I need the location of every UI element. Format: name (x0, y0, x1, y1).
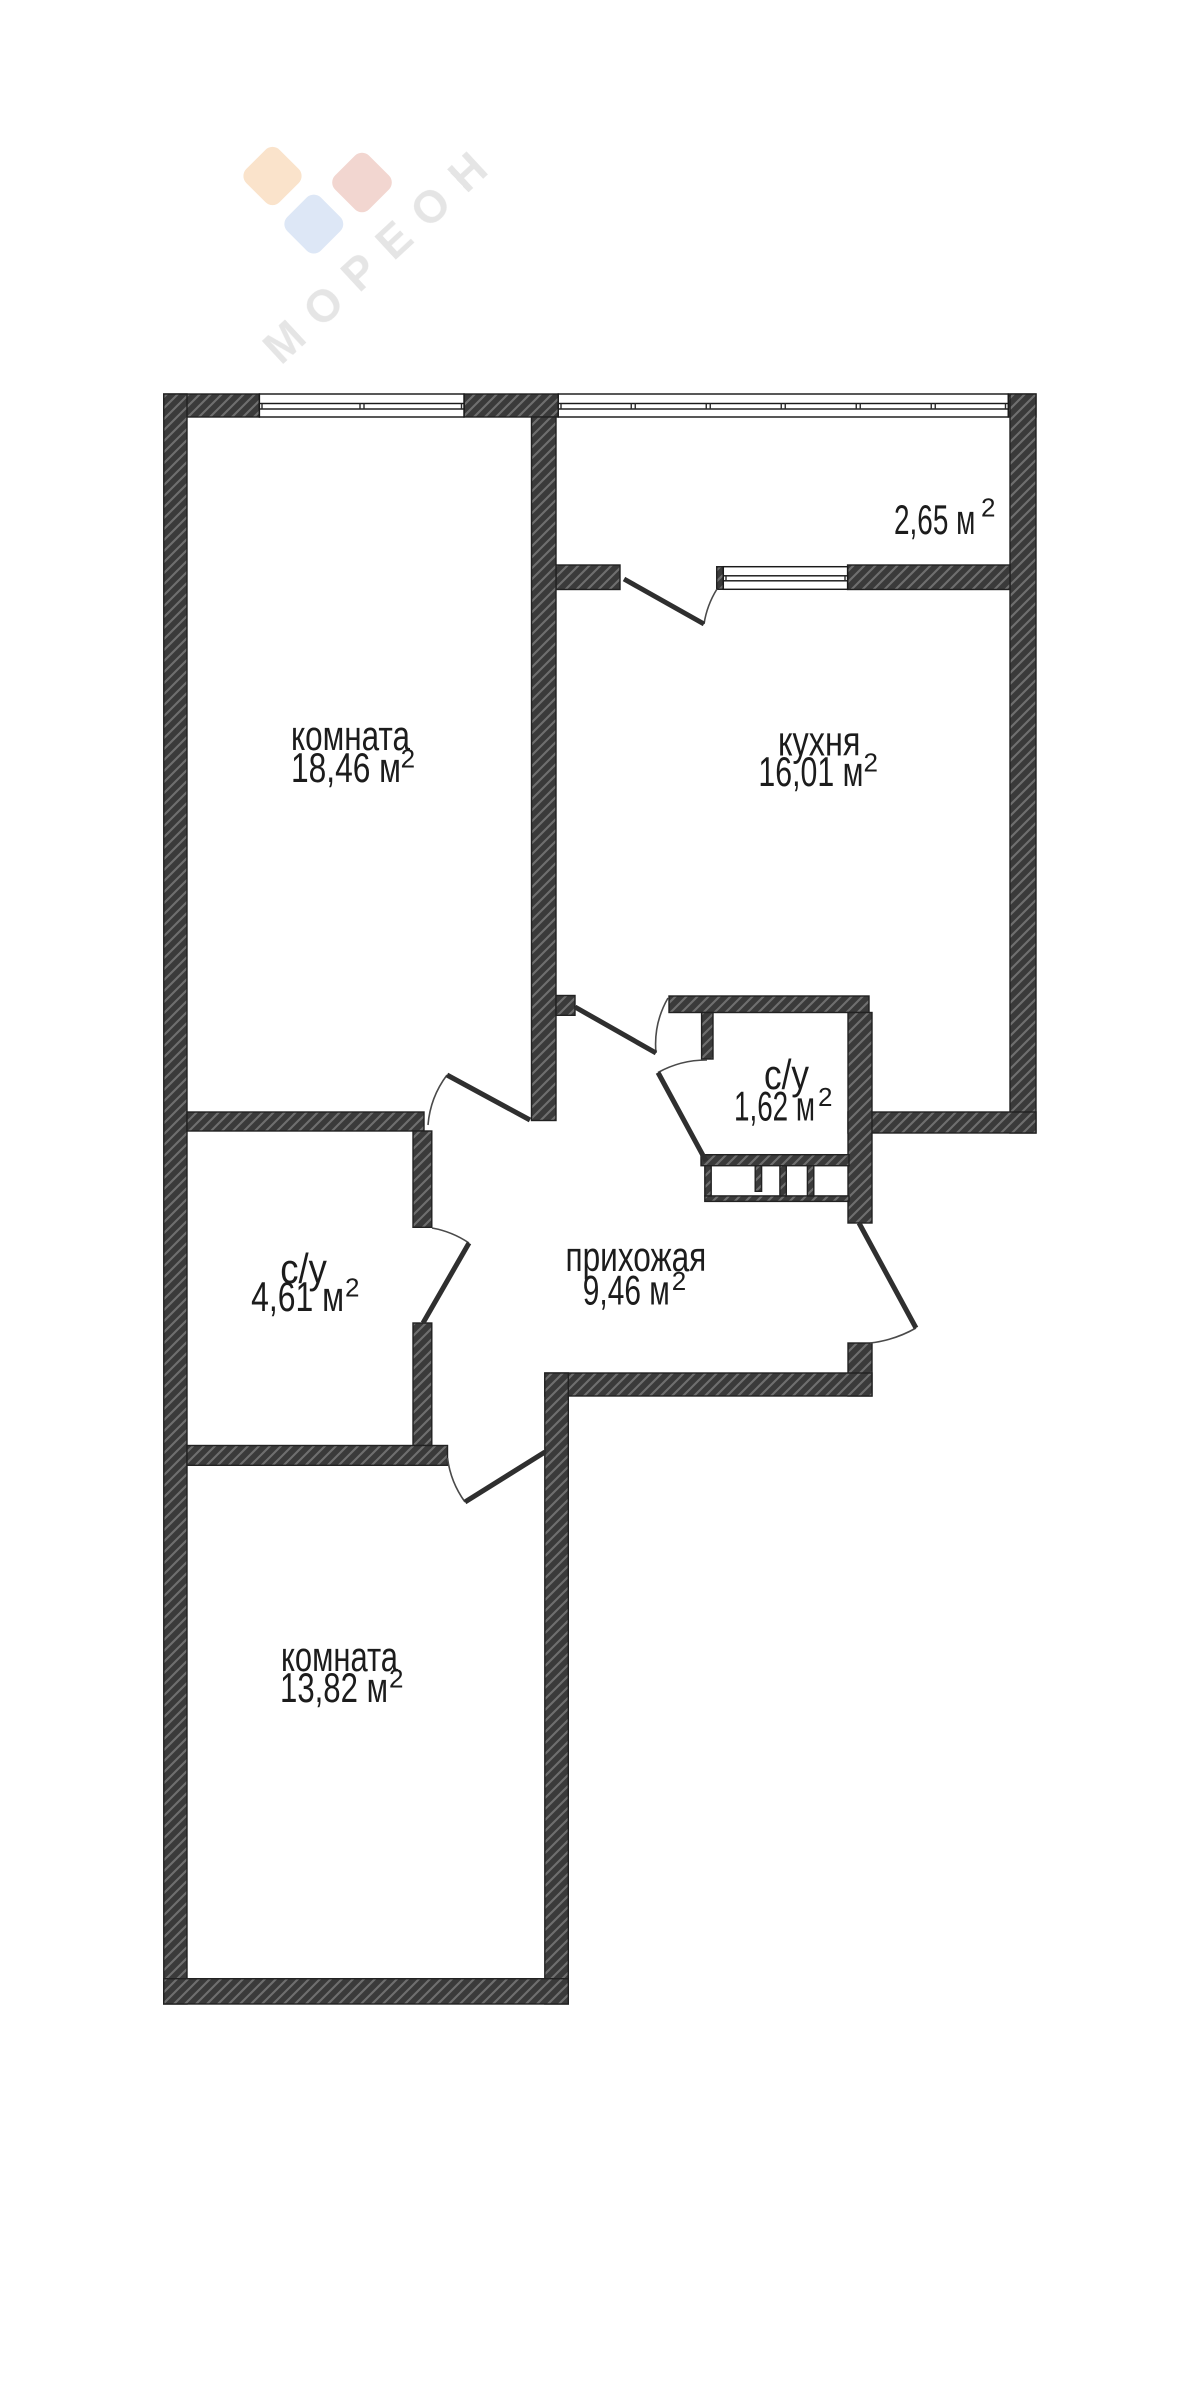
svg-text:9,46 м: 9,46 м (583, 1267, 670, 1314)
svg-text:1,62 м: 1,62 м (734, 1083, 815, 1130)
svg-text:16,01 м: 16,01 м (758, 748, 863, 795)
svg-text:2: 2 (672, 1266, 686, 1296)
svg-text:18,46 м: 18,46 м (291, 744, 401, 791)
svg-text:2,65 м: 2,65 м (894, 496, 975, 543)
svg-text:4,61 м: 4,61 м (251, 1273, 344, 1320)
svg-text:2: 2 (981, 493, 995, 523)
svg-text:2: 2 (818, 1082, 832, 1112)
svg-text:2: 2 (864, 748, 878, 778)
svg-text:2: 2 (389, 1664, 403, 1694)
svg-text:2: 2 (345, 1273, 359, 1303)
svg-text:2: 2 (401, 744, 415, 774)
svg-text:13,82 м: 13,82 м (280, 1664, 388, 1711)
